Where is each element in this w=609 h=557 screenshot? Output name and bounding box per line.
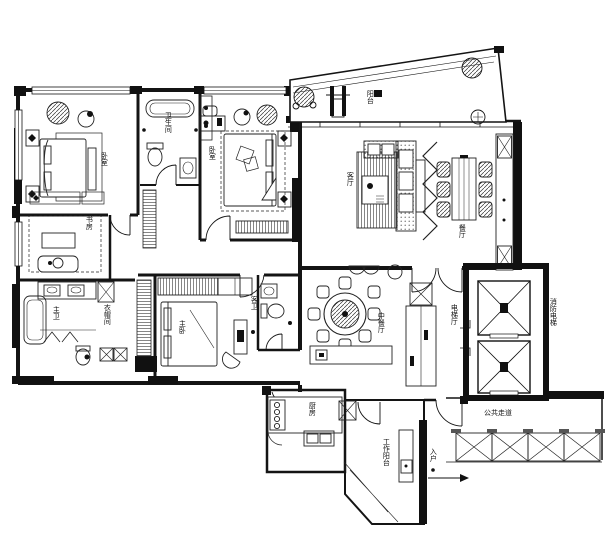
room-label-utility-balcony: 工作阳台 (382, 438, 389, 466)
toilet (148, 148, 162, 166)
dining-set (437, 155, 492, 220)
room-label-bedroom-top-center: 卧室 (208, 146, 215, 160)
chair (479, 162, 492, 177)
bathroom-top-fixtures (142, 96, 212, 178)
bed (40, 139, 86, 197)
plant-icon (257, 105, 277, 125)
chair (479, 202, 492, 217)
elevator-block (460, 266, 546, 398)
laundry-counter (399, 430, 413, 482)
chair (339, 277, 351, 289)
room-label-bathroom-top: 卫生间 (164, 112, 171, 133)
wardrobe (236, 221, 288, 233)
utility-balcony-fixtures (344, 430, 413, 522)
guest-bath-fixtures (261, 284, 292, 325)
room-label-bedroom-top-left: 卧室 (100, 152, 107, 166)
bedroom-top-left-furniture (26, 102, 102, 202)
room-label-entry: 入户 (429, 448, 436, 462)
toilet (268, 304, 284, 318)
chair (317, 330, 329, 342)
chair (308, 308, 320, 320)
plant-icon (462, 58, 482, 78)
coffee-table (362, 176, 388, 204)
room-label-public-corridor: 公共走道 (484, 410, 512, 417)
room-label-fire-elevator: 消防电梯 (549, 298, 556, 326)
chair (317, 286, 329, 298)
chair (359, 330, 371, 342)
room-label-cloakroom: 衣帽间 (103, 304, 110, 325)
room-label-balcony: 阳台 (366, 90, 373, 104)
room-label-chinese-dining: 中餐厅 (377, 312, 384, 333)
entry-arrow (428, 468, 469, 482)
room-label-elevator-hall: 电梯厅 (450, 304, 457, 325)
chair (368, 286, 380, 298)
balcony-structure (290, 46, 506, 124)
shower-door (44, 332, 78, 342)
desk (42, 233, 75, 248)
room-label-study: 书房 (85, 216, 92, 230)
corridor-railing (451, 429, 605, 461)
plant-icon (294, 87, 314, 107)
vanity-sink (261, 284, 277, 298)
foyer-cabinets (406, 283, 436, 386)
floor-plan-drawing (0, 0, 609, 557)
room-label-kitchen: 厨房 (308, 402, 315, 416)
bedroom-top-center-furniture (199, 105, 291, 233)
bed (161, 302, 217, 366)
floor-plan: 卧室 卫生间 卧室 阳台 客厅 餐厅 书房 主卫 衣帽间 主卧 客卫 中餐厅 厨… (0, 0, 609, 557)
master-bath-fixtures (24, 282, 127, 365)
vanity (38, 282, 96, 299)
room-label-master-bathroom: 主卫 (52, 306, 59, 320)
study-furniture (29, 192, 104, 272)
tall-cabinet (496, 134, 513, 270)
bed-bench (88, 148, 96, 190)
wardrobe (158, 278, 218, 295)
hall-cabinets (137, 190, 156, 356)
chair (437, 182, 450, 197)
console (416, 160, 425, 212)
chair (437, 202, 450, 217)
plant-icon (47, 102, 69, 124)
room-label-living-room: 客厅 (346, 172, 353, 186)
room-label-master-bedroom: 主卧 (178, 320, 185, 334)
chair (479, 182, 492, 197)
room-label-dining-room: 餐厅 (458, 224, 465, 238)
vanity-sink (180, 158, 196, 178)
living-room-furniture (349, 141, 437, 279)
chair (437, 162, 450, 177)
room-label-guest-bathroom: 客卫 (250, 296, 257, 310)
